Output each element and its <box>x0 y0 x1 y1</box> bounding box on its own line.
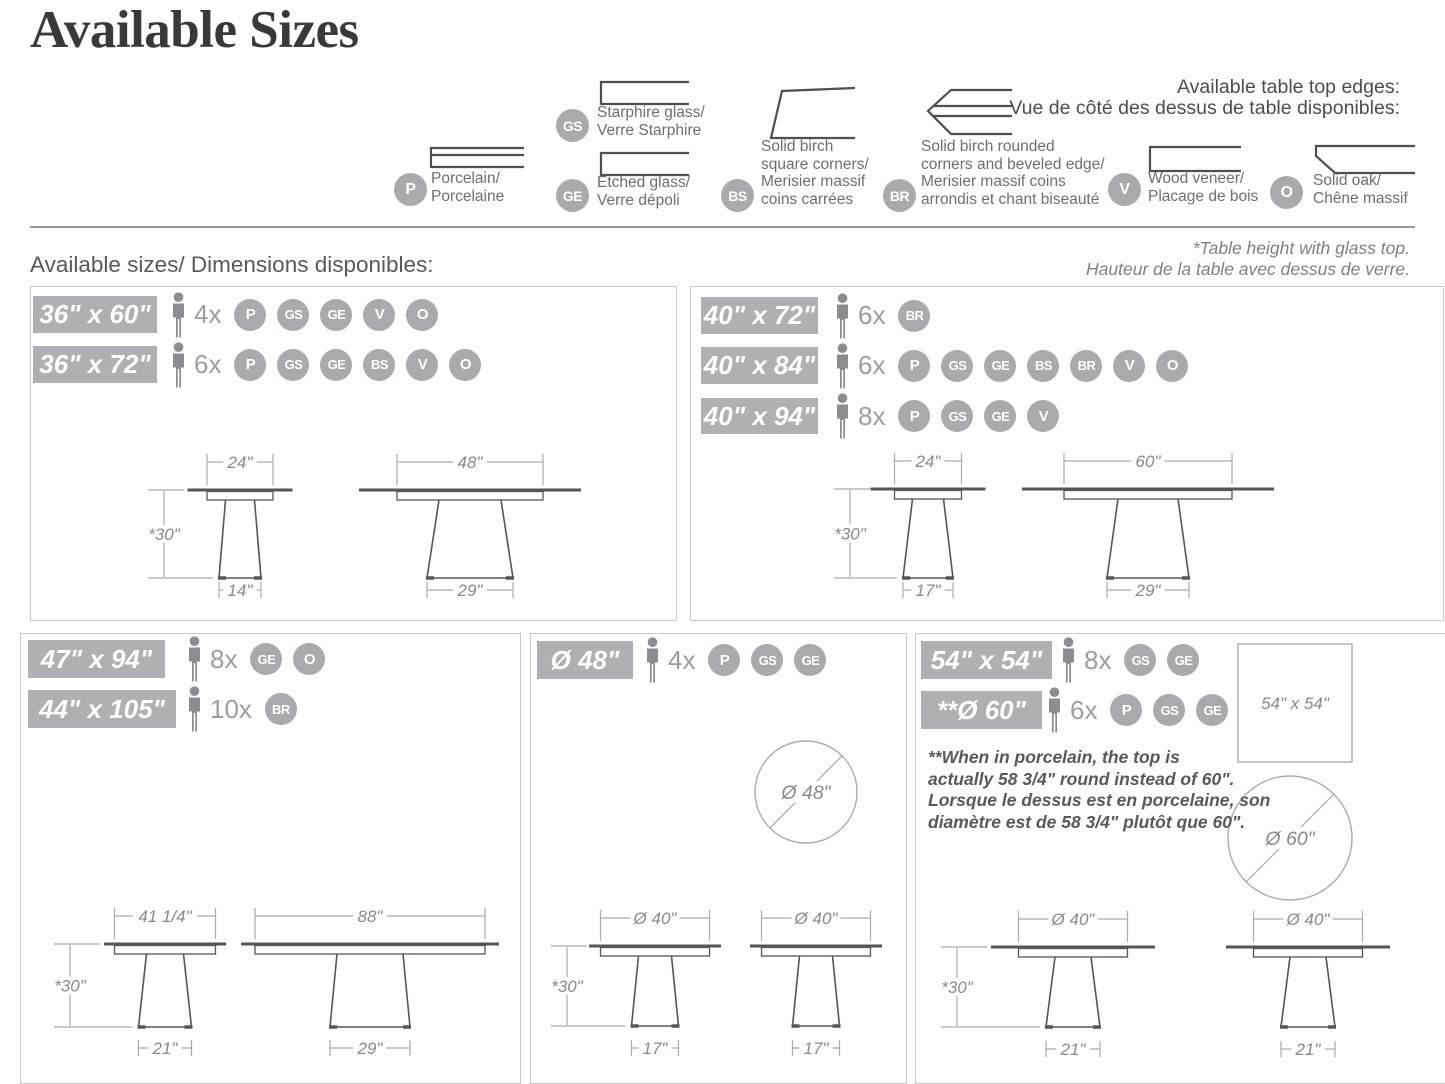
material-badge-gs: GS <box>1153 694 1185 726</box>
material-badge-v: V <box>363 299 395 331</box>
legend-label-line: Porcelaine <box>431 188 504 206</box>
material-badge-p: P <box>1110 694 1142 726</box>
material-badge-v: V <box>1113 350 1145 382</box>
legend-heading-en: Available table top edges: <box>1177 76 1400 99</box>
size-tag: 40" x 94" <box>701 398 818 434</box>
legend-label-line: Solid birch rounded <box>921 138 1105 156</box>
legend-label-o: Solid oak/Chêne massif <box>1313 172 1408 207</box>
seating-row: 6xPGSGEBSBRVO <box>832 343 1188 389</box>
person-icon-wrap <box>642 637 663 683</box>
legend-label-line: Etched glass/ <box>597 174 690 192</box>
material-badge-gs: GS <box>556 109 589 142</box>
person-icon <box>642 637 663 683</box>
size-tag: 36" x 72" <box>33 346 157 383</box>
material-badge-p: P <box>708 644 740 676</box>
seat-count: 6x <box>858 300 885 331</box>
material-badge-ge: GE <box>794 644 826 676</box>
porcelain-note: **When in porcelain, the top isactually … <box>928 747 1208 833</box>
seat-count: 8x <box>858 401 885 432</box>
material-badge-o: O <box>293 643 325 675</box>
material-badge-p: P <box>898 350 930 382</box>
porcelain-note-line: **When in porcelain, the top is <box>928 747 1208 769</box>
person-icon-wrap <box>1058 637 1079 683</box>
seat-count: 6x <box>1070 695 1097 726</box>
material-badge-ge: GE <box>1196 694 1228 726</box>
seating-row: 10xBR <box>184 686 297 732</box>
material-badges: PGSGEBSBRVO <box>898 350 1188 382</box>
person-icon <box>1058 637 1079 683</box>
material-badge-v: V <box>1027 400 1059 432</box>
material-badge-ge: GE <box>320 299 352 331</box>
porcelain-note-line: actually 58 3/4" round instead of 60". <box>928 769 1208 791</box>
height-note-en: *Table height with glass top. <box>1193 238 1410 259</box>
legend-label-ge: Etched glass/Verre dépoli <box>597 174 690 209</box>
material-badge-bs: BS <box>1027 350 1059 382</box>
seat-count: 8x <box>210 644 237 675</box>
material-badge-br: BR <box>1070 350 1102 382</box>
legend-label-line: Solid oak/ <box>1313 172 1408 190</box>
person-icon-wrap <box>184 686 205 732</box>
legend-heading-fr: Vue de côté des dessus de table disponib… <box>1009 97 1400 120</box>
person-icon <box>168 292 189 338</box>
seating-row: 8xPGSGEV <box>832 393 1059 439</box>
legend-label-line: Starphire glass/ <box>597 104 705 122</box>
material-badge-ge: GE <box>1167 644 1199 676</box>
material-badges: BR <box>265 693 297 725</box>
size-tag: 47" x 94" <box>28 640 165 678</box>
material-badges: GEO <box>250 643 325 675</box>
person-icon <box>832 293 853 339</box>
material-badge-p: P <box>898 400 930 432</box>
size-tag: 36" x 60" <box>33 296 157 333</box>
seating-row: 6xBR <box>832 293 930 339</box>
porcelain-note-line: diamètre est de 58 3/4" plutôt que 60". <box>928 812 1208 834</box>
legend-label-gs: Starphire glass/Verre Starphire <box>597 104 705 139</box>
panel-4 <box>530 633 907 1084</box>
person-icon <box>832 393 853 439</box>
legend-label-bs: Solid birchsquare corners/Merisier massi… <box>761 138 869 208</box>
divider-line <box>30 226 1415 228</box>
person-icon <box>1044 687 1065 733</box>
seat-count: 6x <box>194 349 221 380</box>
person-icon-wrap <box>168 342 189 388</box>
seating-row: 4xPGSGE <box>642 637 826 683</box>
material-badge-p: P <box>394 173 427 206</box>
size-tag: 40" x 72" <box>701 297 818 334</box>
legend-label-line: Chêne massif <box>1313 190 1408 208</box>
person-icon-wrap <box>168 292 189 338</box>
legend-label-line: Solid birch <box>761 138 869 156</box>
legend-label-v: Wood veneer/Placage de bois <box>1148 170 1258 205</box>
material-badge-ge: GE <box>250 643 282 675</box>
legend-label-line: Verre dépoli <box>597 192 690 210</box>
size-tag: Ø 48" <box>537 641 633 679</box>
person-icon-wrap <box>184 636 205 682</box>
legend-label-line: corners and beveled edge/ <box>921 156 1105 174</box>
person-icon <box>832 343 853 389</box>
material-badge-ge: GE <box>556 179 589 212</box>
material-badge-ge: GE <box>984 400 1016 432</box>
seating-row: 6xPGSGEBSVO <box>168 342 481 388</box>
material-badge-gs: GS <box>751 644 783 676</box>
seating-row: 4xPGSGEVO <box>168 292 438 338</box>
material-badges: PGSGEVO <box>234 299 438 331</box>
material-badges: PGSGE <box>708 644 826 676</box>
material-badge-o: O <box>1270 176 1303 209</box>
material-badge-gs: GS <box>277 349 309 381</box>
material-badge-br: BR <box>898 300 930 332</box>
material-badge-ge: GE <box>984 350 1016 382</box>
material-badge-br: BR <box>883 179 916 212</box>
person-icon <box>184 686 205 732</box>
size-tag: 40" x 84" <box>701 347 818 384</box>
size-tag: **Ø 60" <box>921 691 1042 729</box>
material-badges: PGSGEV <box>898 400 1059 432</box>
legend-label-line: Merisier massif <box>761 173 869 191</box>
material-badge-gs: GS <box>941 350 973 382</box>
seating-row: 8xGSGE <box>1058 637 1199 683</box>
material-badge-bs: BS <box>721 179 754 212</box>
seat-count: 4x <box>668 645 695 676</box>
material-badge-v: V <box>1108 173 1141 206</box>
panel-2 <box>690 286 1444 621</box>
material-badge-o: O <box>1156 350 1188 382</box>
edge-profile-birch-square-icon <box>761 84 856 146</box>
material-badge-p: P <box>234 299 266 331</box>
legend-label-line: Placage de bois <box>1148 188 1258 206</box>
seating-row: 8xGEO <box>184 636 325 682</box>
size-tag: 54" x 54" <box>921 641 1052 679</box>
material-badge-bs: BS <box>363 349 395 381</box>
legend-label-line: Porcelain/ <box>431 170 504 188</box>
page-title: Available Sizes <box>30 0 359 60</box>
material-badge-ge: GE <box>320 349 352 381</box>
material-badge-gs: GS <box>941 400 973 432</box>
material-badges: PGSGEBSVO <box>234 349 481 381</box>
seat-count: 6x <box>858 350 885 381</box>
person-icon-wrap <box>832 293 853 339</box>
seat-count: 4x <box>194 299 221 330</box>
legend-label-line: Merisier massif coins <box>921 173 1105 191</box>
person-icon-wrap <box>832 343 853 389</box>
material-badge-p: P <box>234 349 266 381</box>
material-badge-gs: GS <box>1124 644 1156 676</box>
material-badges: GSGE <box>1124 644 1199 676</box>
material-badge-v: V <box>406 349 438 381</box>
legend-label-line: arrondis et chant biseauté <box>921 191 1105 209</box>
legend-label-line: coins carrées <box>761 191 869 209</box>
edge-profile-birch-rounded-icon <box>921 86 1013 143</box>
material-badge-o: O <box>449 349 481 381</box>
material-badge-o: O <box>406 299 438 331</box>
person-icon <box>184 636 205 682</box>
material-badges: BR <box>898 300 930 332</box>
legend-label-line: Verre Starphire <box>597 122 705 140</box>
material-badge-gs: GS <box>277 299 309 331</box>
person-icon-wrap <box>832 393 853 439</box>
material-badge-br: BR <box>265 693 297 725</box>
size-tag: 44" x 105" <box>28 690 176 728</box>
person-icon <box>168 342 189 388</box>
seating-row: 6xPGSGE <box>1044 687 1228 733</box>
seat-count: 10x <box>210 694 252 725</box>
height-note-fr: Hauteur de la table avec dessus de verre… <box>1086 259 1410 280</box>
legend-label-br: Solid birch roundedcorners and beveled e… <box>921 138 1105 208</box>
legend-label-line: Wood veneer/ <box>1148 170 1258 188</box>
person-icon-wrap <box>1044 687 1065 733</box>
section-heading: Available sizes/ Dimensions disponibles: <box>30 252 434 278</box>
seat-count: 8x <box>1084 645 1111 676</box>
spec-sheet-page: Available Sizes Available table top edge… <box>0 0 1445 1084</box>
legend-label-line: square corners/ <box>761 156 869 174</box>
material-badges: PGSGE <box>1110 694 1228 726</box>
porcelain-note-line: Lorsque le dessus est en porcelaine, son <box>928 790 1208 812</box>
legend-label-p: Porcelain/Porcelaine <box>431 170 504 205</box>
